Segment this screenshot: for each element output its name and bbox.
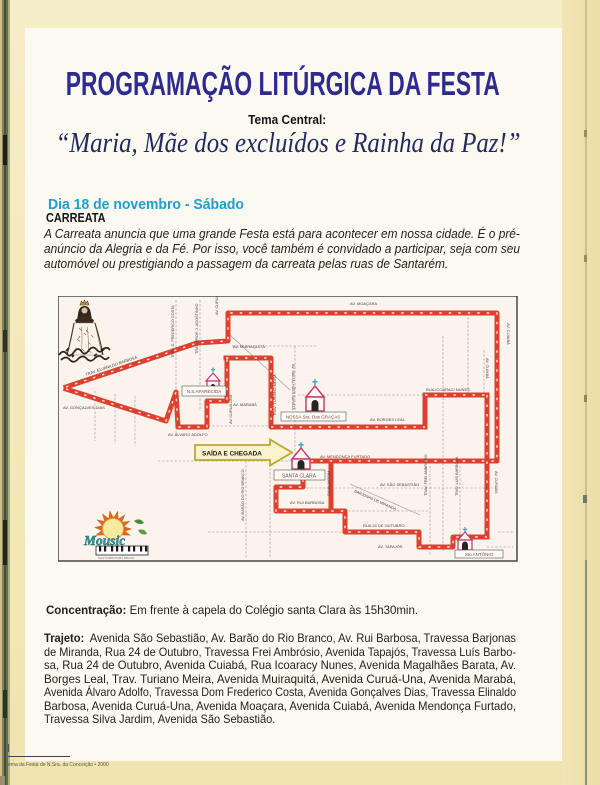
svg-text:AV. SÃO SEBASTIÃO: AV. SÃO SEBASTIÃO xyxy=(380,482,419,487)
svg-text:Sto ANTÔNIO: Sto ANTÔNIO xyxy=(465,551,494,557)
svg-text:TRAV. FREI AMBRÓSIO: TRAV. FREI AMBRÓSIO xyxy=(423,454,428,496)
svg-text:TRAV. LUIS BARBOSA: TRAV. LUIS BARBOSA xyxy=(455,456,459,496)
svg-text:SANTARÉM PARÁ BRASIL: SANTARÉM PARÁ BRASIL xyxy=(98,555,135,560)
svg-text:TRAV. TURIANO MEIRA: TRAV. TURIANO MEIRA xyxy=(273,374,277,416)
svg-text:N.S.APARECIDA: N.S.APARECIDA xyxy=(187,389,221,394)
svg-text:AV. MOAÇARA: AV. MOAÇARA xyxy=(350,301,377,306)
svg-text:AV. CUIABÁ: AV. CUIABÁ xyxy=(506,323,511,345)
svg-text:RUA 24 DE OUTUBRO: RUA 24 DE OUTUBRO xyxy=(363,523,405,528)
svg-text:AV. RUI BARBOSA: AV. RUI BARBOSA xyxy=(290,500,325,505)
svg-text:AV. CUIABÁ: AV. CUIABÁ xyxy=(485,358,489,379)
svg-text:AV. ALVARO ADOLFO: AV. ALVARO ADOLFO xyxy=(168,432,208,437)
svg-text:AV. BARÃO DO RIO BRANCO: AV. BARÃO DO RIO BRANCO xyxy=(240,469,245,521)
svg-text:AV. MUIRAQUITÁ: AV. MUIRAQUITÁ xyxy=(233,344,265,349)
svg-text:AV. BORGES LEAL: AV. BORGES LEAL xyxy=(370,417,406,422)
svg-text:SILVA JARDIM: SILVA JARDIM xyxy=(327,471,331,496)
svg-text:NOSSA Sra. Das GRAÇAS: NOSSA Sra. Das GRAÇAS xyxy=(286,415,341,420)
svg-text:AV. GONÇALVES DIAS: AV. GONÇALVES DIAS xyxy=(63,405,105,410)
svg-text:AV. MARABÁ: AV. MARABÁ xyxy=(233,402,257,407)
svg-text:AV. CURUÁS: AV. CURUÁS xyxy=(494,471,498,494)
svg-text:AV. MENDONÇA FURTADO: AV. MENDONÇA FURTADO xyxy=(320,454,370,459)
svg-text:AV. MAGALHÃES BARATA: AV. MAGALHÃES BARATA xyxy=(291,364,296,410)
svg-text:AV. CURUÁ-UN: AV. CURUÁ-UN xyxy=(215,296,219,315)
svg-text:SAÍDA E CHEGADA: SAÍDA E CHEGADA xyxy=(202,449,262,458)
svg-text:AV. CURUÁ-UNA: AV. CURUÁ-UNA xyxy=(229,394,233,424)
svg-text:SANTA CLARA: SANTA CLARA xyxy=(282,474,317,480)
svg-text:AV. TAPAJÓS: AV. TAPAJÓS xyxy=(378,544,403,549)
svg-text:TRAV. D. FREDERICO COSTA: TRAV. D. FREDERICO COSTA xyxy=(171,305,175,358)
svg-text:RUA ICOARACI NUNES: RUA ICOARACI NUNES xyxy=(426,387,470,392)
svg-text:TRAV. PROF. J. AGOSTINHO: TRAV. PROF. J. AGOSTINHO xyxy=(195,304,199,354)
